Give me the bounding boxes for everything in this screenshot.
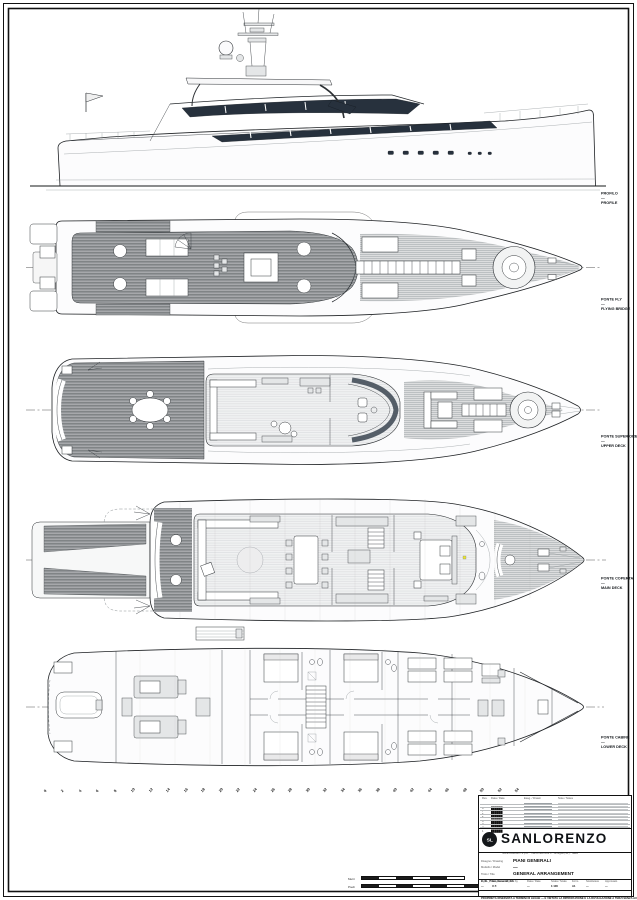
disclaimer-text: PROPRIETÀ RISERVATA A TERMINI DI LEGGE —… bbox=[481, 897, 637, 900]
info-label: Esecutore / Drawn by bbox=[492, 880, 518, 883]
sofa bbox=[210, 380, 256, 387]
frame-ordinate-mark: 16 bbox=[182, 787, 188, 793]
profile-hull bbox=[58, 110, 596, 186]
info-value: — bbox=[586, 885, 589, 888]
info-label: Approvato bbox=[605, 880, 617, 883]
deck-hatch bbox=[462, 275, 476, 286]
label-main-deck: PONTE COPERTA — MAIN DECK bbox=[601, 576, 635, 611]
mast-and-antennas bbox=[219, 9, 278, 76]
title-block: Rev. Data / Date Eseg. / Drawn Note / No… bbox=[478, 795, 632, 897]
frame-ordinate-mark: 40 bbox=[392, 787, 398, 793]
frame-ordinate-mark: 20 bbox=[217, 787, 223, 793]
info-value: 1:100 bbox=[551, 885, 558, 888]
frame-ordinate-mark: 54 bbox=[514, 787, 520, 793]
sun-pad bbox=[146, 239, 188, 256]
brand-wordmark: SANLORENZO bbox=[501, 831, 608, 846]
frame-ordinate-mark: 6 bbox=[95, 789, 100, 793]
frame-ordinate-mark: 26 bbox=[270, 787, 276, 793]
frame-ordinate-mark: 28 bbox=[287, 787, 293, 793]
scale-bar bbox=[361, 884, 482, 889]
hardtop bbox=[186, 78, 332, 85]
info-label: Scala / Scale bbox=[551, 880, 567, 883]
scale-bar-row: Piedi bbox=[348, 882, 488, 890]
cockpit-table bbox=[171, 535, 182, 546]
info-value: — bbox=[605, 885, 608, 888]
scale-bar-segment bbox=[396, 885, 413, 888]
drawn-col-header: Eseg. / Drawn bbox=[524, 797, 541, 800]
sofa bbox=[210, 433, 256, 440]
cocktail-table bbox=[279, 422, 291, 434]
galley-island bbox=[348, 550, 370, 563]
aft-locker bbox=[40, 277, 55, 289]
foredeck-sun-pad bbox=[362, 237, 398, 252]
info-value: U.T. bbox=[492, 885, 497, 888]
scale-bar bbox=[361, 876, 465, 881]
graphic-scale-bars: MetriPiedi bbox=[348, 874, 488, 890]
label-separator: — bbox=[601, 740, 605, 744]
label-en: FLYING BRIDGE bbox=[601, 307, 630, 311]
info-label: Rev. bbox=[481, 880, 486, 883]
label-flying-bridge: PONTE FLY — FLYING BRIDGE bbox=[601, 297, 635, 332]
frame-ordinate-mark: 50 bbox=[479, 787, 485, 793]
stairs-up bbox=[368, 528, 384, 548]
fly-table bbox=[297, 242, 311, 256]
deck-hatch bbox=[462, 249, 476, 260]
scale-bar-segment bbox=[447, 877, 464, 880]
fly-table bbox=[114, 245, 127, 258]
passerelle-detail bbox=[196, 627, 244, 640]
frame-ordinate-mark: 36 bbox=[357, 787, 363, 793]
scale-bar-segment bbox=[413, 877, 430, 880]
frame-ordinate-mark: 22 bbox=[235, 787, 241, 793]
label-separator: — bbox=[601, 196, 605, 200]
info-value: A1 bbox=[572, 885, 575, 888]
label-en: MAIN DECK bbox=[601, 586, 622, 590]
scale-bar-label: Metri bbox=[348, 877, 355, 880]
flying-bridge-plan bbox=[26, 212, 600, 323]
scale-bar-segment bbox=[430, 885, 447, 888]
frame-ordinate-mark: 14 bbox=[165, 787, 171, 793]
frame-ordinate-mark: 0 bbox=[43, 789, 48, 793]
frame-ordinate-mark: 32 bbox=[322, 787, 328, 793]
frame-ordinate-mark: 48 bbox=[462, 787, 468, 793]
info-value: — bbox=[481, 885, 484, 888]
sun-pad bbox=[474, 420, 502, 432]
rev-number: 1 bbox=[482, 830, 484, 833]
profile-view-drawing bbox=[30, 9, 606, 190]
label-profile: PROFILO — PROFILE bbox=[601, 191, 635, 226]
fly-table bbox=[114, 278, 127, 291]
helm-seat bbox=[358, 413, 367, 422]
sanlorenzo-logo: SL bbox=[482, 832, 497, 847]
frame-ordinate-mark: 2 bbox=[60, 789, 65, 793]
owner-headboard bbox=[452, 536, 457, 584]
label-it: PONTE CABINE bbox=[601, 735, 630, 739]
cockpit-table bbox=[171, 575, 182, 586]
stern-flag bbox=[86, 93, 103, 112]
frame-ordinate-mark: 46 bbox=[444, 787, 450, 793]
windlass bbox=[538, 564, 549, 571]
crane-track bbox=[356, 261, 460, 274]
aft-deck-teak bbox=[56, 361, 204, 459]
frame-ordinate-mark: 30 bbox=[305, 787, 311, 793]
helm-seat bbox=[358, 398, 367, 407]
frame-ordinate-mark: 52 bbox=[497, 787, 503, 793]
info-value: — bbox=[527, 885, 530, 888]
scale-bar-label: Piedi bbox=[348, 885, 355, 888]
dining-table bbox=[294, 536, 318, 584]
label-it: PONTE SUPERIORE bbox=[601, 434, 637, 438]
label-en: UPPER DECK bbox=[601, 444, 626, 448]
scale-bar-segment bbox=[413, 885, 430, 888]
fly-table bbox=[297, 279, 311, 293]
lower-deck-plan bbox=[26, 648, 604, 766]
stern-platform-wing bbox=[30, 224, 57, 244]
frame-ordinate-mark: 18 bbox=[200, 787, 206, 793]
windlass bbox=[552, 403, 560, 409]
aft-locker bbox=[40, 246, 55, 258]
main-staircase bbox=[306, 686, 326, 728]
aft-dining-table bbox=[132, 398, 168, 422]
scale-bar-segment bbox=[379, 885, 396, 888]
upper-deck-window-band bbox=[182, 99, 420, 117]
frame-ordinate-mark: 4 bbox=[78, 789, 83, 793]
label-separator: — bbox=[601, 302, 605, 306]
tv-cabinet bbox=[262, 378, 288, 384]
radar-dome bbox=[219, 41, 233, 55]
label-separator: — bbox=[601, 439, 605, 443]
label-en: PROFILE bbox=[601, 201, 617, 205]
note-col-header: Note / Notes bbox=[558, 797, 573, 800]
galley-counter bbox=[336, 594, 388, 603]
scale-bar-segment bbox=[362, 885, 379, 888]
frame-ordinate-mark: 38 bbox=[374, 787, 380, 793]
info-label: Sostituisce bbox=[586, 880, 599, 883]
galley-counter bbox=[336, 517, 388, 526]
main-deck-plan bbox=[26, 498, 606, 640]
stern-platform-wing bbox=[30, 291, 57, 311]
info-label: Data / Date bbox=[527, 880, 541, 883]
crew-mess-table bbox=[482, 664, 500, 676]
frame-ordinate-mark: 34 bbox=[340, 787, 346, 793]
scale-bar-row: Metri bbox=[348, 874, 488, 882]
salon-sofa bbox=[198, 520, 206, 600]
windlass bbox=[552, 411, 560, 417]
label-lower-deck: PONTE CABINE — LOWER DECK bbox=[601, 735, 635, 770]
date-col-header: Data / Date bbox=[491, 797, 505, 800]
radar-open-array bbox=[238, 33, 278, 36]
drawing-sheet: PROFILO — PROFILE PONTE FLY — FLYING BRI… bbox=[0, 0, 637, 900]
bar-counter bbox=[300, 378, 330, 386]
scale-bar-segment bbox=[396, 877, 413, 880]
sofa bbox=[210, 380, 217, 440]
frame-ordinate-mark: 24 bbox=[252, 787, 258, 793]
upper-deck-plan bbox=[26, 356, 600, 465]
bow-table bbox=[505, 555, 515, 565]
windlass bbox=[538, 549, 549, 556]
frame-ordinate-mark: 42 bbox=[409, 787, 415, 793]
scale-bar-segment bbox=[362, 877, 379, 880]
rev-note-line bbox=[558, 826, 628, 827]
sun-pad bbox=[146, 279, 188, 296]
label-it: PONTE FLY bbox=[601, 297, 622, 301]
bow-seating bbox=[431, 392, 457, 399]
frame-ordinate-mark: 12 bbox=[148, 787, 154, 793]
crane-track bbox=[462, 404, 506, 416]
rev-drawn-line bbox=[524, 826, 552, 827]
rev-col-header: Rev. bbox=[482, 797, 487, 800]
stairs-down bbox=[368, 570, 384, 590]
label-en: LOWER DECK bbox=[601, 745, 627, 749]
label-separator: — bbox=[601, 581, 605, 585]
scale-bar-segment bbox=[379, 877, 396, 880]
frame-ordinate-mark: 44 bbox=[427, 787, 433, 793]
frame-ordinate-mark: 8 bbox=[113, 789, 118, 793]
scale-bar-segment bbox=[430, 877, 447, 880]
sun-pad bbox=[474, 388, 502, 400]
bow-seating bbox=[431, 421, 457, 428]
bow-seating bbox=[424, 392, 431, 428]
frame-ordinate-mark: 10 bbox=[130, 787, 136, 793]
foredeck-sun-pad bbox=[362, 283, 398, 298]
highlight-marker bbox=[463, 556, 466, 559]
scale-bar-segment bbox=[447, 885, 464, 888]
label-it: PONTE COPERTA bbox=[601, 576, 633, 580]
drawing-canvas bbox=[0, 0, 637, 900]
bow-table bbox=[438, 402, 452, 418]
info-label: Form. bbox=[572, 880, 579, 883]
label-it: PROFILO bbox=[601, 191, 618, 195]
label-upper-deck: PONTE SUPERIORE — UPPER DECK bbox=[601, 434, 635, 469]
